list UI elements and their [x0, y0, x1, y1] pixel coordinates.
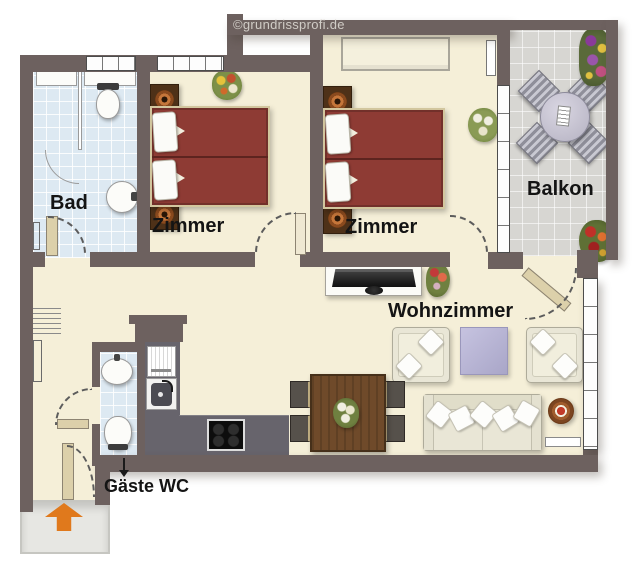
tv-stand	[365, 286, 383, 295]
wardrobe-icon	[341, 37, 450, 71]
wall	[137, 342, 145, 466]
window-icon	[497, 85, 510, 253]
wall	[92, 342, 100, 387]
pillow-icon	[325, 161, 352, 203]
toilet-icon	[108, 444, 128, 450]
wall	[577, 250, 598, 278]
room-label-bad: Bad	[50, 192, 88, 215]
tv-icon	[332, 269, 416, 287]
armchair-icon	[526, 327, 583, 383]
armchair-icon	[392, 327, 450, 383]
dining-chair-icon	[384, 415, 405, 442]
double-bed-icon	[150, 106, 270, 207]
room-label-gaeste-wc: Gäste WC	[104, 476, 189, 497]
window-icon	[86, 56, 136, 71]
wall	[300, 252, 450, 267]
room-label-zimmer2: Zimmer	[345, 216, 417, 239]
watermark: ©grundrissprofi.de	[233, 17, 345, 32]
bath-shelf	[36, 70, 77, 86]
radiator-icon	[486, 40, 496, 76]
balcony-railing	[506, 20, 618, 30]
window-icon	[157, 56, 224, 71]
dining-chair-icon	[384, 381, 405, 408]
wall	[90, 252, 255, 267]
plant-icon	[468, 108, 498, 142]
radiator-icon	[33, 340, 42, 382]
faucet-icon	[162, 380, 173, 392]
cooktop-icon	[207, 419, 245, 451]
room-label-wohnzimmer: Wohnzimmer	[388, 300, 513, 323]
radiator-icon	[545, 437, 581, 447]
wall	[488, 252, 523, 269]
floor-plan: Bad Zimmer Zimmer Balkon Wohnzimmer Gäst…	[0, 0, 640, 574]
radiator-icon	[33, 306, 61, 334]
pillow-icon	[152, 159, 179, 201]
room-label-zimmer1: Zimmer	[152, 215, 224, 238]
pillow-icon	[152, 111, 179, 153]
label-pointer-arrow	[119, 470, 129, 477]
appliance-handle	[151, 369, 171, 372]
fridge-icon	[147, 346, 176, 377]
wall	[137, 70, 150, 267]
balcony-railing	[606, 20, 618, 260]
dining-chair-icon	[290, 381, 311, 408]
side-table-icon	[548, 398, 574, 424]
kitchen-sink-icon	[146, 378, 177, 410]
door-leaf	[295, 213, 306, 255]
magazine-icon	[556, 105, 571, 126]
wall	[95, 455, 598, 472]
faucet-icon	[114, 354, 120, 361]
ottoman-icon	[460, 327, 508, 375]
wall	[92, 456, 145, 466]
dining-chair-icon	[290, 415, 311, 442]
radiator-icon	[33, 222, 40, 250]
plant-icon	[212, 70, 242, 100]
double-bed-icon	[323, 108, 445, 209]
wall	[20, 55, 33, 512]
tv-sideboard	[325, 266, 422, 296]
plant-icon	[333, 398, 359, 428]
room-label-balkon: Balkon	[527, 178, 594, 201]
wash-basin-icon	[101, 358, 133, 385]
pillow-icon	[325, 113, 352, 155]
toilet-icon	[96, 89, 120, 119]
sofa-icon	[423, 394, 542, 451]
window-icon	[583, 278, 598, 450]
wall	[310, 35, 323, 267]
wall	[33, 252, 45, 267]
wall	[135, 317, 183, 342]
shower-icon	[78, 68, 82, 150]
